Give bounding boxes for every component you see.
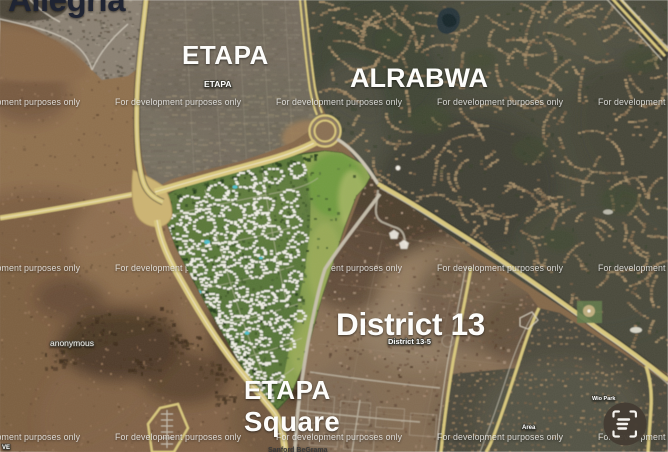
svg-text:anonymous: anonymous — [50, 338, 94, 348]
svg-text:VE: VE — [2, 445, 10, 451]
svg-text:For development purposes only: For development purposes only — [0, 263, 81, 273]
svg-text:District 13-5: District 13-5 — [388, 337, 431, 346]
svg-text:For development purposes only: For development purposes only — [115, 432, 242, 442]
svg-text:For development purposes only: For development purposes only — [598, 263, 668, 273]
svg-text:Area: Area — [522, 425, 536, 431]
svg-text:For development purposes only: For development purposes only — [598, 97, 668, 107]
svg-text:For development purposes only: For development purposes only — [0, 432, 81, 442]
svg-text:For development purposes only: For development purposes only — [437, 263, 564, 273]
svg-text:Wio Park: Wio Park — [592, 396, 616, 402]
svg-text:For development purposes only: For development purposes only — [115, 263, 242, 273]
svg-text:Sanford BeGrama: Sanford BeGrama — [268, 447, 328, 452]
svg-text:ALRABWA: ALRABWA — [350, 63, 488, 93]
svg-text:For development purposes only: For development purposes only — [276, 263, 403, 273]
svg-text:ETAPA: ETAPA — [204, 79, 232, 89]
svg-text:Allegria: Allegria — [8, 0, 126, 18]
svg-text:ETAPA: ETAPA — [182, 40, 269, 70]
svg-text:Square: Square — [244, 406, 340, 437]
svg-text:For development purposes only: For development purposes only — [115, 97, 242, 107]
svg-text:ETAPA: ETAPA — [244, 375, 331, 405]
svg-text:For development purposes only: For development purposes only — [437, 97, 564, 107]
svg-text:For development purposes only: For development purposes only — [0, 97, 81, 107]
svg-text:For development purposes only: For development purposes only — [437, 432, 564, 442]
svg-text:For development purposes only: For development purposes only — [276, 97, 403, 107]
